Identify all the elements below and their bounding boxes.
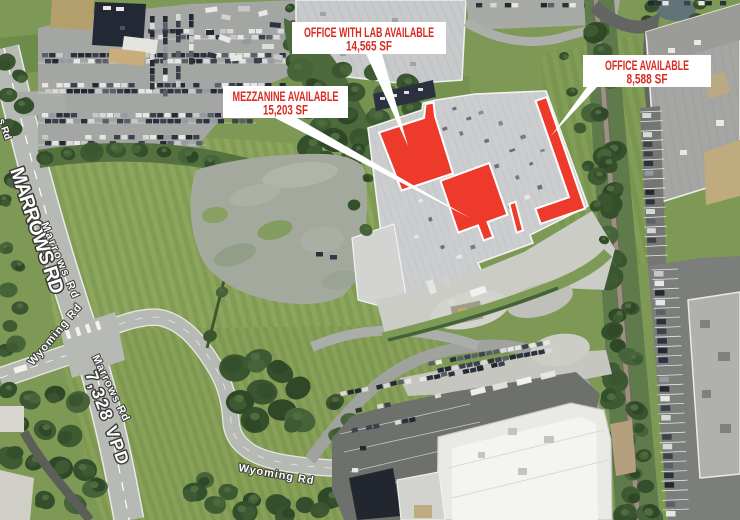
svg-text:8,588 SF: 8,588 SF: [627, 71, 668, 87]
svg-text:14,565 SF: 14,565 SF: [346, 38, 392, 54]
svg-text:15,203 SF: 15,203 SF: [263, 102, 308, 118]
